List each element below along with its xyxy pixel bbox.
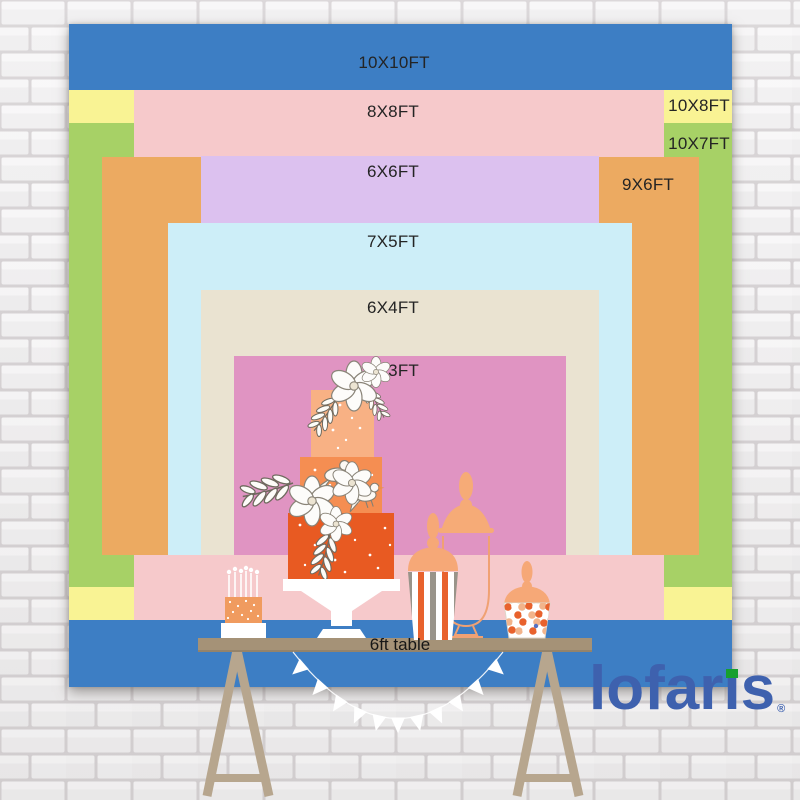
registered-trademark-icon: ® bbox=[777, 704, 785, 715]
backdrop-size-label-10x8ft: 10X8FT bbox=[668, 96, 730, 116]
backdrop-size-label-6x4ft: 6X4FT bbox=[367, 298, 419, 318]
logo-text-part1: lofar bbox=[589, 658, 723, 720]
backdrop-size-chart: 10X10FT10X8FT10X7FT8X8FT9X6FT6X6FT7X5FT6… bbox=[0, 0, 800, 800]
backdrop-size-label-10x10ft: 10X10FT bbox=[358, 53, 429, 73]
backdrop-size-label-8x8ft: 8X8FT bbox=[367, 102, 419, 122]
logo-green-square-icon bbox=[726, 669, 738, 678]
table-size-label: 6ft table bbox=[370, 635, 431, 655]
backdrop-size-label-10x7ft: 10X7FT bbox=[668, 134, 730, 154]
backdrop-size-label-6x6ft: 6X6FT bbox=[367, 162, 419, 182]
lofaris-logo: lofarıs ® bbox=[589, 658, 785, 720]
backdrop-rect-5x3ft bbox=[234, 356, 566, 555]
backdrop-size-label-5x3ft: 5X3FT bbox=[367, 361, 419, 381]
backdrop-size-label-9x6ft: 9X6FT bbox=[622, 175, 674, 195]
backdrop-size-label-7x5ft: 7X5FT bbox=[367, 232, 419, 252]
logo-letter-i: ı bbox=[723, 658, 740, 720]
logo-text-part3: s bbox=[741, 658, 775, 720]
